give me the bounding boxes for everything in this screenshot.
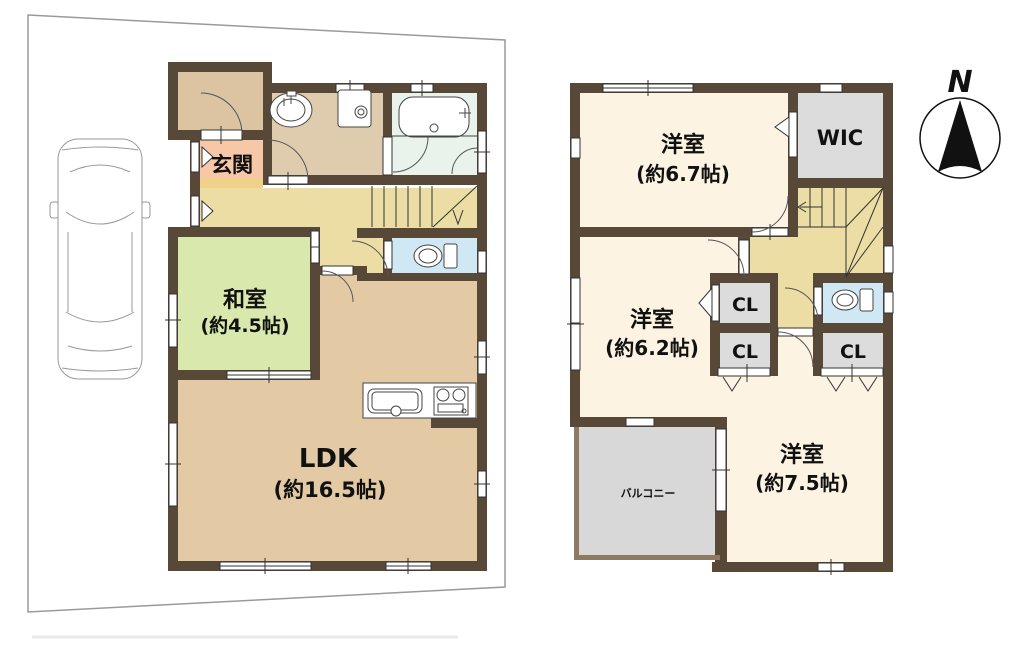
closet-c-label: CL xyxy=(840,341,866,363)
bath-door xyxy=(383,137,392,175)
bedroom-c-label: 洋室 xyxy=(780,442,824,468)
corridor2-floor xyxy=(778,277,813,333)
ldk-size-label: (約16.5帖) xyxy=(273,478,386,502)
wic-label: WIC xyxy=(817,126,863,150)
kitchen-counter-icon xyxy=(363,383,476,418)
bedroom-a-size-label: (約6.7帖) xyxy=(636,162,730,186)
washitsu-label: 和室 xyxy=(223,287,267,313)
closet-b-label: CL xyxy=(732,341,758,363)
washitsu-size-label: (約4.5帖) xyxy=(200,314,289,337)
compass-needle xyxy=(938,100,982,172)
compass: N xyxy=(920,65,1000,178)
bathtub-icon xyxy=(392,97,477,137)
hall2-floor xyxy=(750,237,883,277)
balcony-label: バルコニー xyxy=(621,487,676,500)
car-icon xyxy=(50,139,150,379)
ldk-door xyxy=(322,266,353,275)
bedroom-a-label: 洋室 xyxy=(661,132,705,158)
toilet1-icon xyxy=(414,244,457,268)
toilet2-icon xyxy=(832,289,873,311)
bedroom-b-size-label: (約6.2帖) xyxy=(605,336,699,360)
genkan-label: 玄関 xyxy=(211,153,253,177)
bedroom-c-size-label: (約7.5帖) xyxy=(755,471,849,495)
balcony-wall xyxy=(574,427,579,560)
toilet1-door xyxy=(384,241,392,269)
genkan-step xyxy=(200,178,263,188)
wic-door xyxy=(789,112,797,157)
bedroom-c-entry-floor xyxy=(778,333,813,376)
bedroom-b-door xyxy=(739,240,749,274)
porch-floor xyxy=(178,72,263,130)
bedroom-c-floor xyxy=(727,376,883,562)
bedroom-b-label: 洋室 xyxy=(630,307,674,333)
toilet2-door xyxy=(814,287,822,315)
floor2-plan: 洋室 (約6.7帖) WIC 洋室 (約6.2帖) CL CL CL 洋室 (約… xyxy=(567,80,893,575)
washing-machine-icon xyxy=(338,90,371,127)
compass-north-label: N xyxy=(947,65,972,100)
bedroom-a-floor xyxy=(580,93,788,227)
hall-floor xyxy=(200,188,477,228)
balcony-wall xyxy=(574,555,720,560)
floor1-plan: 玄関 和室 (約4.5帖) LDK (約16.5帖) xyxy=(165,62,490,574)
closet-a-label: CL xyxy=(732,294,758,316)
floorplan-drawing: 玄関 和室 (約4.5帖) LDK (約16.5帖) xyxy=(0,0,1024,647)
floorplan-page: 玄関 和室 (約4.5帖) LDK (約16.5帖) xyxy=(0,0,1024,647)
ldk-label: LDK xyxy=(299,444,358,474)
